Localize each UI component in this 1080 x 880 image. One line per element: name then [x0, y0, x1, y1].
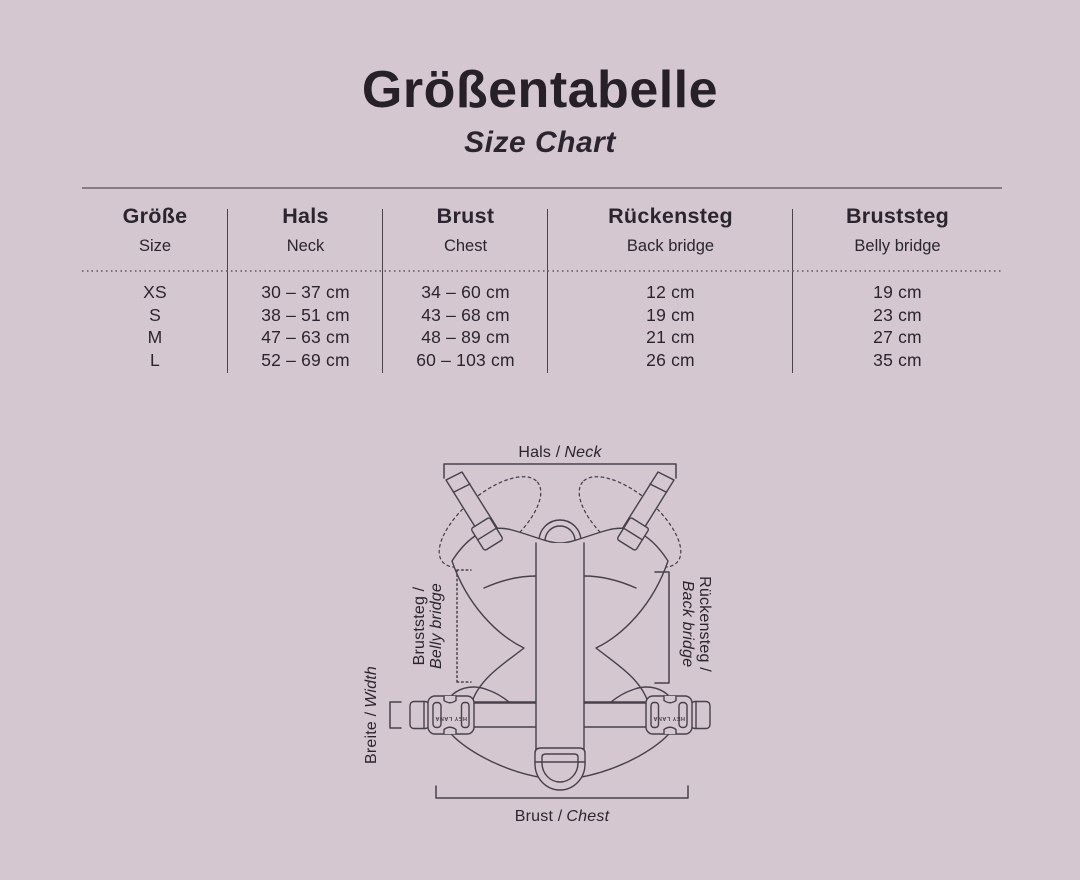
column-header-en: Chest	[383, 235, 548, 257]
page-subtitle: Size Chart	[0, 126, 1080, 160]
neck-label-de: Hals /	[518, 444, 560, 461]
cell-neck-m: 47 – 63 cm	[228, 326, 383, 349]
harness-diagram: Hals /Neck Brust /Chest Bruststeg /Belly…	[340, 430, 780, 840]
cell-back-xs: 12 cm	[548, 281, 793, 304]
buckle	[410, 696, 474, 734]
column-values: XS S M L	[82, 281, 228, 371]
belly-bridge-label: Bruststeg /Belly bridge	[411, 583, 445, 669]
width-label: Breite /Width	[363, 666, 380, 764]
column-header-en: Back bridge	[548, 235, 793, 257]
neck-bracket	[444, 464, 676, 478]
cell-neck-s: 38 – 51 cm	[228, 304, 383, 327]
cell-neck-l: 52 – 69 cm	[228, 349, 383, 372]
belly-bridge-label-de: Bruststeg /	[411, 586, 428, 665]
width-bracket	[390, 702, 401, 728]
belly-bridge-label-en: Belly bridge	[428, 583, 445, 669]
chest-label: Brust /Chest	[515, 808, 610, 825]
cell-size-xs: XS	[82, 281, 228, 304]
back-bridge-bracket	[655, 572, 669, 683]
cell-neck-xs: 30 – 37 cm	[228, 281, 383, 304]
cell-back-l: 26 cm	[548, 349, 793, 372]
column-header-de: Rückensteg	[548, 203, 793, 229]
width-label-de: Breite /	[363, 711, 380, 764]
column-header-de: Hals	[228, 203, 383, 229]
back-bridge-label-en: Back bridge	[679, 581, 696, 668]
cell-chest-s: 43 – 68 cm	[383, 304, 548, 327]
page-title: Größentabelle	[0, 64, 1080, 116]
column-neck: Hals Neck 30 – 37 cm 38 – 51 cm 47 – 63 …	[228, 189, 383, 373]
table-dotted-rule	[82, 270, 1002, 272]
cell-size-s: S	[82, 304, 228, 327]
cell-chest-xs: 34 – 60 cm	[383, 281, 548, 304]
header: Größentabelle Size Chart	[0, 64, 1080, 160]
cell-size-l: L	[82, 349, 228, 372]
column-back-bridge: Rückensteg Back bridge 12 cm 19 cm 21 cm…	[548, 189, 793, 373]
buckle-brand-text-right: HEY LANA	[653, 715, 685, 721]
cell-belly-m: 27 cm	[793, 326, 1002, 349]
column-values: 30 – 37 cm 38 – 51 cm 47 – 63 cm 52 – 69…	[228, 281, 383, 371]
cell-chest-m: 48 – 89 cm	[383, 326, 548, 349]
width-label-en: Width	[363, 666, 380, 708]
bottom-d-ring	[535, 748, 585, 790]
table-grid: Größe Size XS S M L Hals Neck 30 – 37 cm…	[82, 189, 1002, 373]
cell-size-m: M	[82, 326, 228, 349]
column-values: 12 cm 19 cm 21 cm 26 cm	[548, 281, 793, 371]
column-size: Größe Size XS S M L	[82, 189, 228, 373]
strap-curve-bottom	[452, 735, 544, 778]
chest-label-de: Brust /	[515, 808, 563, 825]
column-belly-bridge: Bruststeg Belly bridge 19 cm 23 cm 27 cm…	[793, 189, 1002, 373]
handle-ring	[539, 519, 581, 541]
belly-strap	[474, 703, 536, 727]
column-header-de: Bruststeg	[793, 203, 1002, 229]
column-header-en: Belly bridge	[793, 235, 1002, 257]
column-values: 34 – 60 cm 43 – 68 cm 48 – 89 cm 60 – 10…	[383, 281, 548, 371]
cell-back-s: 19 cm	[548, 304, 793, 327]
back-bridge-label: Rückensteg /Back bridge	[679, 576, 713, 672]
cell-belly-xs: 19 cm	[793, 281, 1002, 304]
cell-belly-l: 35 cm	[793, 349, 1002, 372]
column-header-de: Brust	[383, 203, 548, 229]
neck-label: Hals /Neck	[518, 444, 602, 461]
chest-label-en: Chest	[566, 808, 609, 825]
column-header-de: Größe	[82, 203, 228, 229]
column-chest: Brust Chest 34 – 60 cm 43 – 68 cm 48 – 8…	[383, 189, 548, 373]
back-bridge-label-de: Rückensteg /	[696, 576, 713, 672]
column-header-en: Neck	[228, 235, 383, 257]
cell-chest-l: 60 – 103 cm	[383, 349, 548, 372]
column-values: 19 cm 23 cm 27 cm 35 cm	[793, 281, 1002, 371]
cell-back-m: 21 cm	[548, 326, 793, 349]
buckle-brand-text-left: HEY LANA	[435, 715, 467, 721]
center-band	[536, 543, 584, 751]
column-header-en: Size	[82, 235, 228, 257]
cell-belly-s: 23 cm	[793, 304, 1002, 327]
neck-label-en: Neck	[564, 444, 602, 461]
